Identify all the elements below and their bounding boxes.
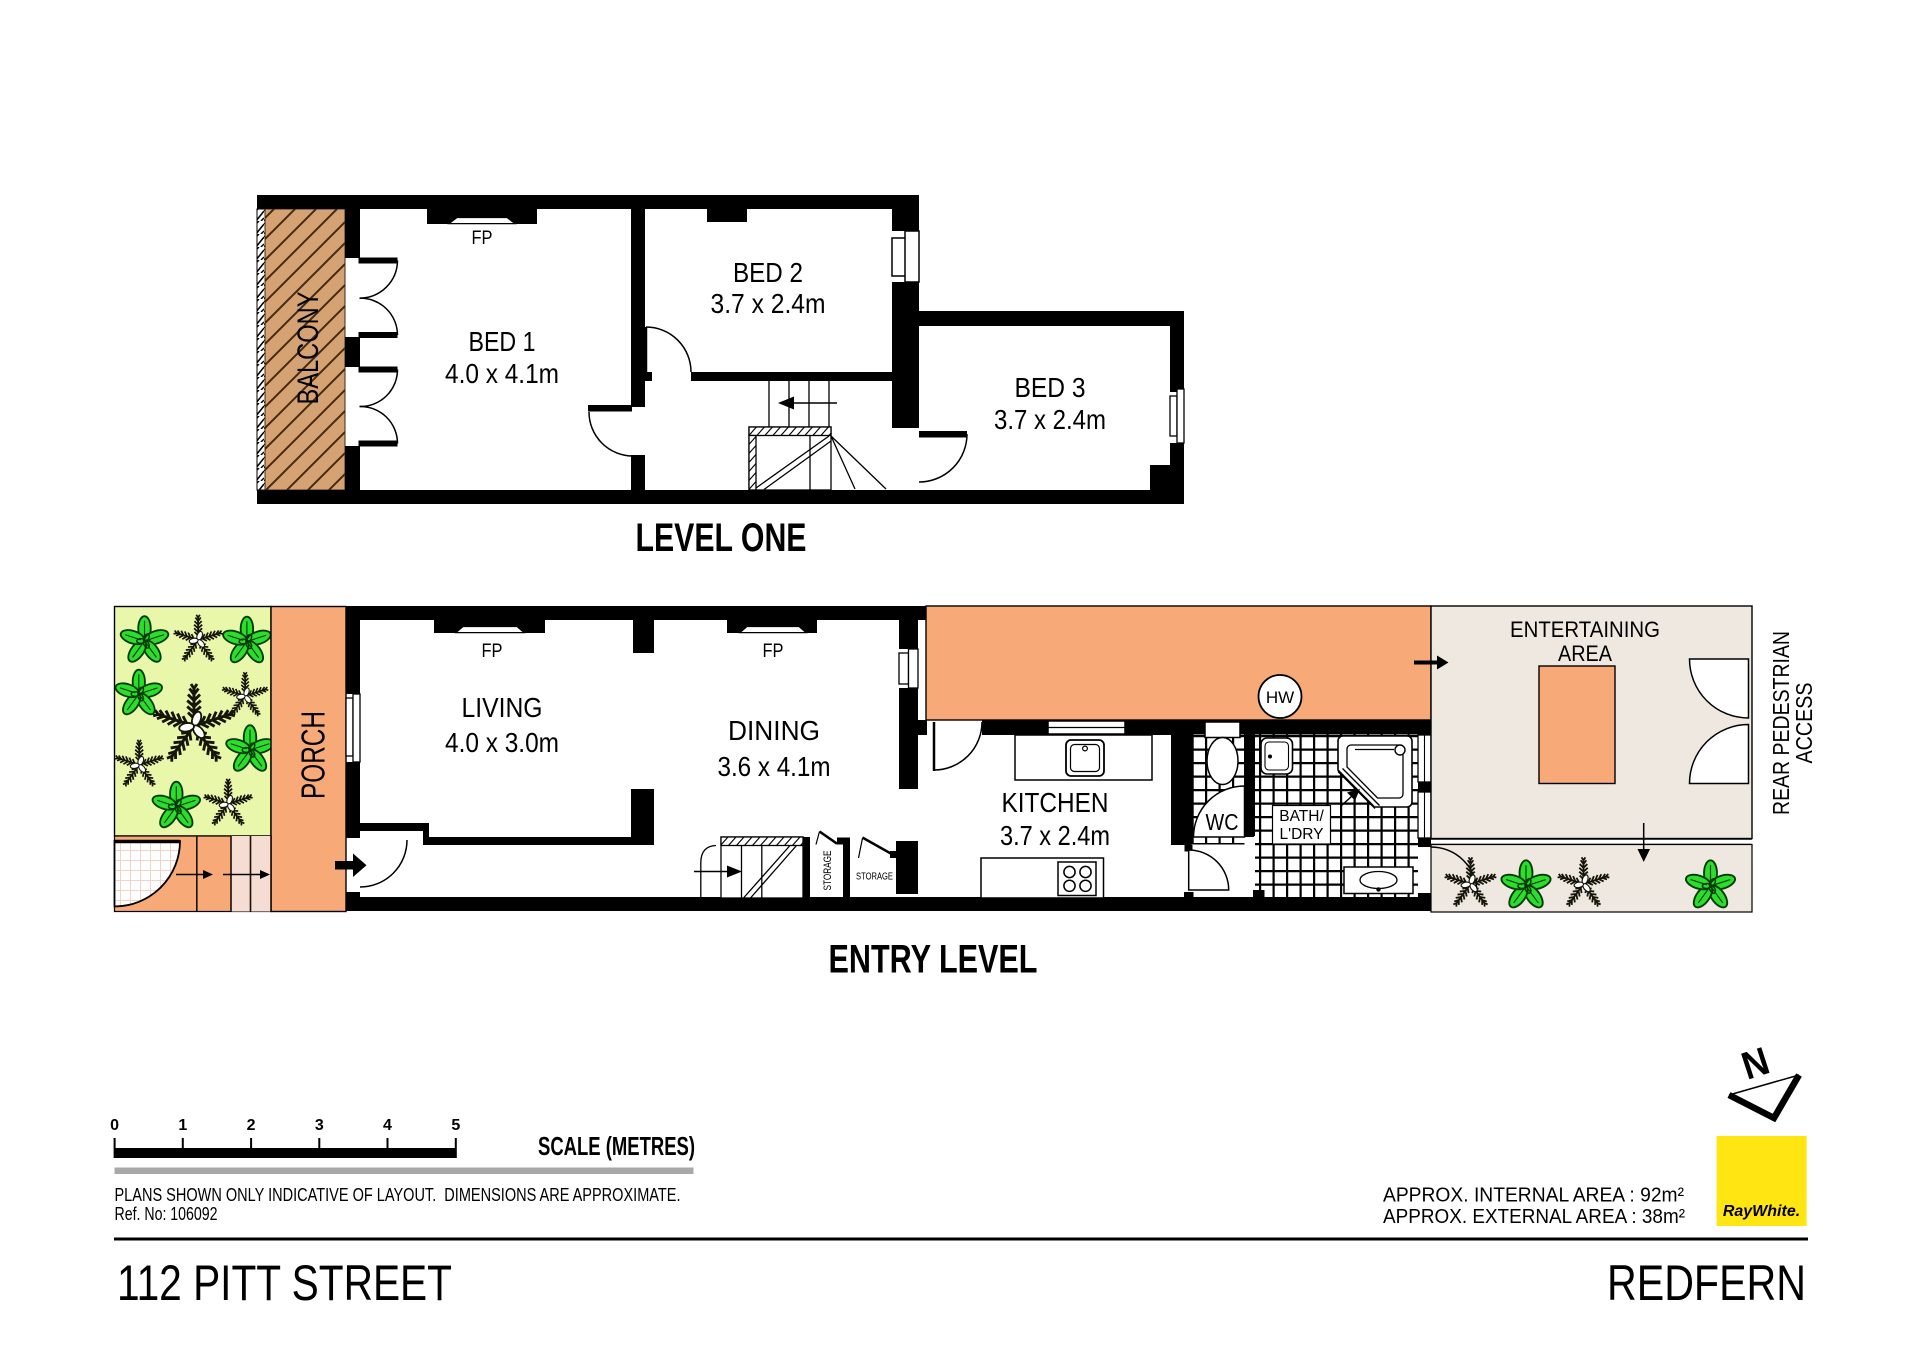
svg-text:ACCESS: ACCESS	[1791, 683, 1817, 764]
svg-text:2: 2	[247, 1117, 256, 1134]
svg-text:APPROX. EXTERNAL AREA : 38m²: APPROX. EXTERNAL AREA : 38m²	[1383, 1205, 1685, 1228]
svg-text:ENTERTAINING: ENTERTAINING	[1510, 617, 1660, 642]
svg-text:BED 2: BED 2	[733, 257, 803, 288]
svg-text:PLANS SHOWN ONLY INDICATIVE OF: PLANS SHOWN ONLY INDICATIVE OF LAYOUT. D…	[115, 1184, 681, 1205]
svg-text:WC: WC	[1206, 809, 1239, 835]
svg-text:1: 1	[178, 1117, 187, 1134]
svg-text:4: 4	[383, 1117, 392, 1134]
svg-text:3.6 x 4.1m: 3.6 x 4.1m	[718, 751, 831, 782]
svg-text:BATH/: BATH/	[1279, 808, 1324, 825]
svg-text:FP: FP	[482, 641, 503, 662]
svg-text:BALCONY: BALCONY	[292, 292, 325, 405]
svg-text:ENTRY LEVEL: ENTRY LEVEL	[829, 938, 1038, 982]
svg-text:LEVEL ONE: LEVEL ONE	[636, 516, 807, 560]
svg-text:3.7 x 2.4m: 3.7 x 2.4m	[1000, 820, 1110, 851]
svg-text:Ref. No: 106092: Ref. No: 106092	[115, 1203, 218, 1224]
svg-text:SCALE (METRES): SCALE (METRES)	[538, 1133, 695, 1161]
svg-text:FP: FP	[763, 641, 784, 662]
svg-text:3.7 x 2.4m: 3.7 x 2.4m	[711, 288, 826, 319]
svg-text:BED 1: BED 1	[469, 326, 536, 357]
svg-text:5: 5	[451, 1117, 460, 1134]
svg-text:112 PITT STREET: 112 PITT STREET	[117, 1255, 452, 1311]
svg-text:3.7 x 2.4m: 3.7 x 2.4m	[994, 404, 1106, 435]
svg-text:STORAGE: STORAGE	[822, 851, 834, 891]
svg-text:L'DRY: L'DRY	[1279, 826, 1323, 843]
svg-text:DINING: DINING	[728, 715, 820, 746]
svg-text:4.0 x 4.1m: 4.0 x 4.1m	[445, 358, 559, 389]
svg-text:RayWhite.: RayWhite.	[1723, 1203, 1800, 1220]
svg-text:3: 3	[315, 1117, 324, 1134]
svg-text:4.0 x 3.0m: 4.0 x 3.0m	[445, 727, 559, 758]
svg-text:FP: FP	[472, 228, 493, 249]
svg-text:BED 3: BED 3	[1015, 372, 1086, 403]
svg-text:REDFERN: REDFERN	[1607, 1255, 1806, 1311]
svg-text:HW: HW	[1266, 688, 1294, 707]
svg-text:APPROX. INTERNAL AREA : 92m²: APPROX. INTERNAL AREA : 92m²	[1383, 1184, 1684, 1207]
svg-text:STORAGE: STORAGE	[856, 872, 893, 883]
svg-text:PORCH: PORCH	[295, 711, 332, 799]
svg-text:0: 0	[110, 1117, 119, 1134]
svg-text:LIVING: LIVING	[462, 692, 543, 723]
svg-text:KITCHEN: KITCHEN	[1002, 787, 1109, 818]
svg-text:AREA: AREA	[1558, 641, 1612, 666]
